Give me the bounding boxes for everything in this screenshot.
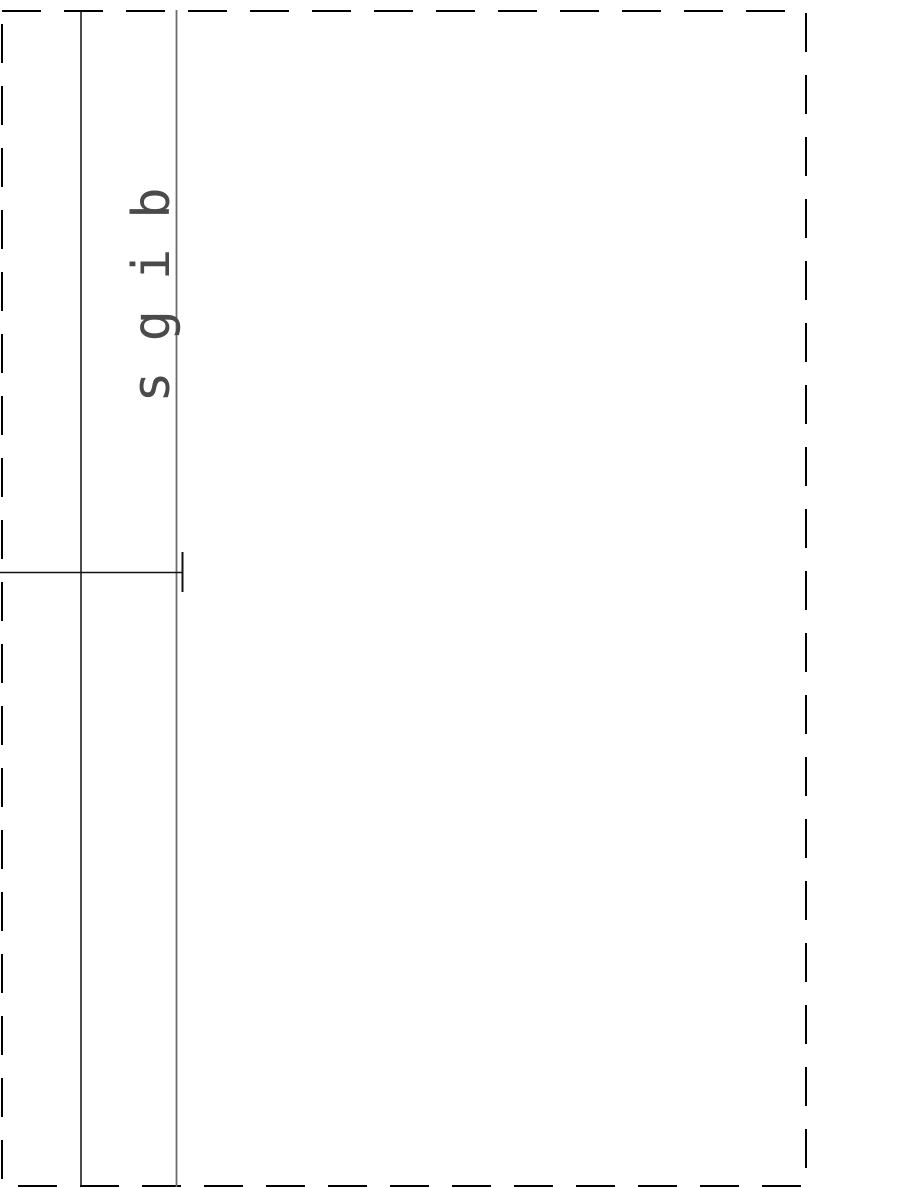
scanned-sheet: sgib <box>0 0 918 1188</box>
rotated-label: sgib <box>102 150 202 410</box>
